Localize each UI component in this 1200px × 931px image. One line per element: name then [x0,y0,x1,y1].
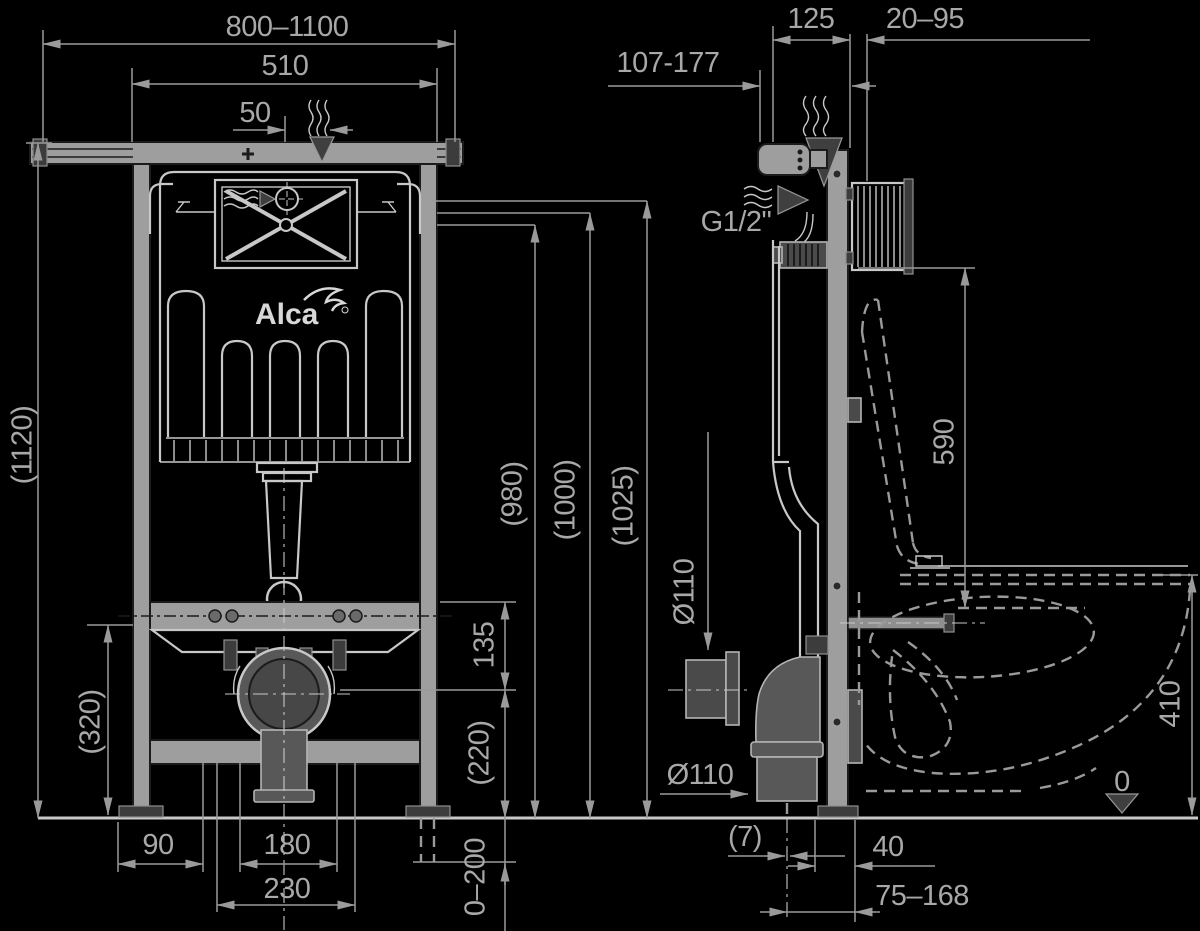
logo-text: Alca [255,298,319,331]
dim-height-1000: (1000) [550,460,582,541]
dim-outlet-height: (220) [464,720,496,785]
dim-plate-depth: 107-177 [617,47,720,79]
dim-height-1025: (1025) [608,466,640,547]
dim-foot-offset: 90 [142,829,173,861]
dim-water-connection: G1/2" [701,206,772,238]
dim-outlet-to-wall: 40 [872,831,903,863]
dim-inlet-diameter: Ø110 [669,559,701,626]
dim-foot-extension: 0–200 [460,838,492,916]
dim-lower-frame-height: (320) [75,689,107,754]
dim-rail-width: 800–1100 [226,11,349,43]
dim-stud-spacing: 180 [264,829,311,861]
foot-plate-right [406,806,450,817]
dim-height-980: (980) [497,461,529,526]
dim-bracket-to-outlet: 135 [469,622,501,669]
dim-frame-depth: 125 [788,3,835,35]
mounting-stud-left [224,640,237,670]
dim-total-height: (1120) [7,406,39,485]
dim-floor-level: 0 [1114,766,1130,798]
dim-center-offset: 50 [239,97,270,129]
wall-rail [30,139,463,166]
dim-outlet-diameter: Ø110 [667,759,734,791]
technical-drawing: Alca [0,0,1200,931]
dim-outlet-center-offset: (7) [728,821,762,853]
dim-frame-width: 510 [262,50,309,82]
dim-outlet-range: 75–168 [875,880,969,912]
foot-plate-left [119,806,163,817]
dim-stud-outer-spacing: 230 [264,873,311,905]
mounting-stud-right [333,640,346,670]
dim-bracket-to-seat: 590 [929,419,961,466]
dim-seat-height: 410 [1155,681,1187,728]
dim-wall-finish: 20–95 [886,3,964,35]
